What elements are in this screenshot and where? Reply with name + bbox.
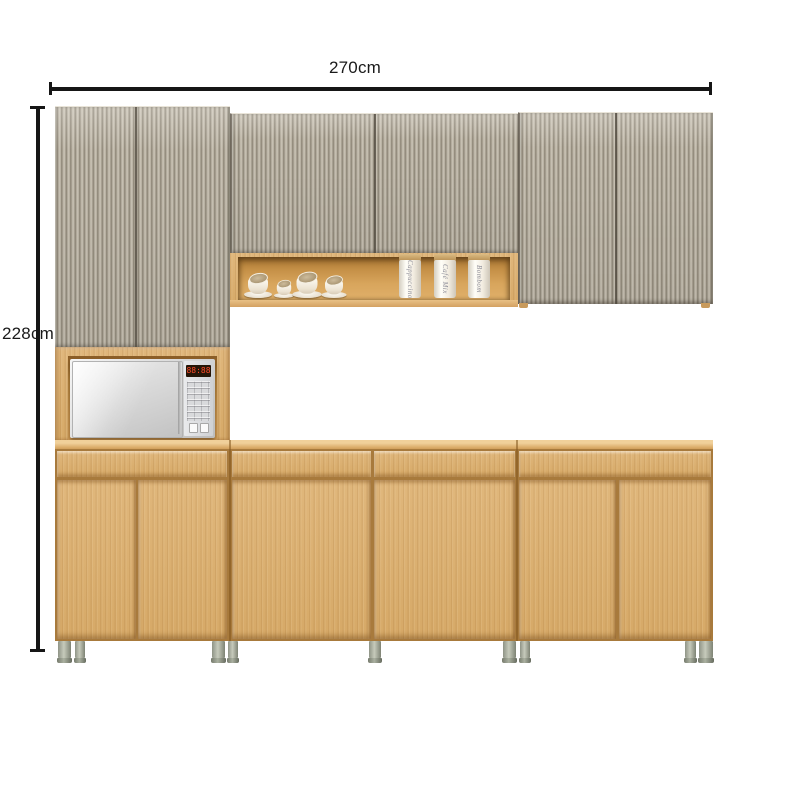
height-dimension-line [36, 107, 40, 652]
module-junction [516, 440, 518, 641]
cabinet-foot [75, 641, 85, 658]
canister-label: Café Mix [441, 264, 449, 294]
base-door [232, 480, 371, 639]
coffee-cup [321, 275, 348, 298]
cabinet-foot [228, 641, 238, 658]
coffee-cup [291, 271, 323, 298]
drawer [519, 451, 711, 477]
canister-label: Bombom [475, 265, 483, 293]
shelf-front-edge [230, 300, 518, 307]
microwave-control-panel: 88:88 [184, 361, 213, 436]
cabinet-foot [699, 641, 713, 658]
microwave-button [200, 423, 209, 433]
base-door [519, 480, 616, 639]
microwave: 88:88 [70, 359, 215, 438]
door-divider [135, 107, 137, 348]
microwave-button-grid [187, 381, 210, 421]
door-divider [615, 113, 617, 304]
door-divider [374, 114, 376, 254]
product-image: 270cm 228cm Cappuccino Café Mix [0, 0, 800, 800]
microwave-door [72, 361, 183, 438]
canister: Bombom [468, 254, 490, 298]
microwave-button [189, 423, 198, 433]
open-shelf-interior: Cappuccino Café Mix Bombom [238, 257, 510, 300]
width-dimension-label: 270cm [305, 58, 405, 78]
cabinet-foot [685, 641, 696, 658]
microwave-handle [178, 362, 181, 434]
base-door [57, 480, 136, 639]
drawer [232, 451, 371, 477]
drawer [57, 451, 227, 477]
canister: Cappuccino [399, 254, 421, 298]
cabinet-foot [58, 641, 71, 658]
base-door [619, 480, 711, 639]
module-junction [229, 440, 231, 641]
coffee-cup [243, 272, 273, 298]
base-door [138, 480, 227, 639]
wall-cabinet-middle-doors [230, 113, 520, 254]
drawer [374, 451, 515, 477]
cabinet-foot [520, 641, 530, 658]
width-dimension-line [50, 87, 711, 91]
cabinet-foot [369, 641, 381, 658]
height-dimension-label: 228cm [2, 324, 55, 344]
canister-label: Cappuccino [406, 260, 414, 299]
cabinet-foot [503, 641, 516, 658]
canister: Café Mix [434, 254, 456, 298]
width-dimension-tick-right [709, 82, 712, 95]
microwave-display: 88:88 [186, 365, 211, 377]
wall-cabinet-side-edge [701, 303, 710, 308]
open-shelf: Cappuccino Café Mix Bombom [230, 253, 518, 307]
wall-cabinet-side-edge [519, 303, 528, 308]
wall-cabinet-right-doors [518, 112, 713, 304]
tall-cabinet-upper-doors [55, 106, 230, 348]
cabinet-foot [212, 641, 225, 658]
base-door [374, 480, 515, 639]
width-dimension-tick-left [49, 82, 52, 95]
countertop-edge [55, 440, 713, 449]
